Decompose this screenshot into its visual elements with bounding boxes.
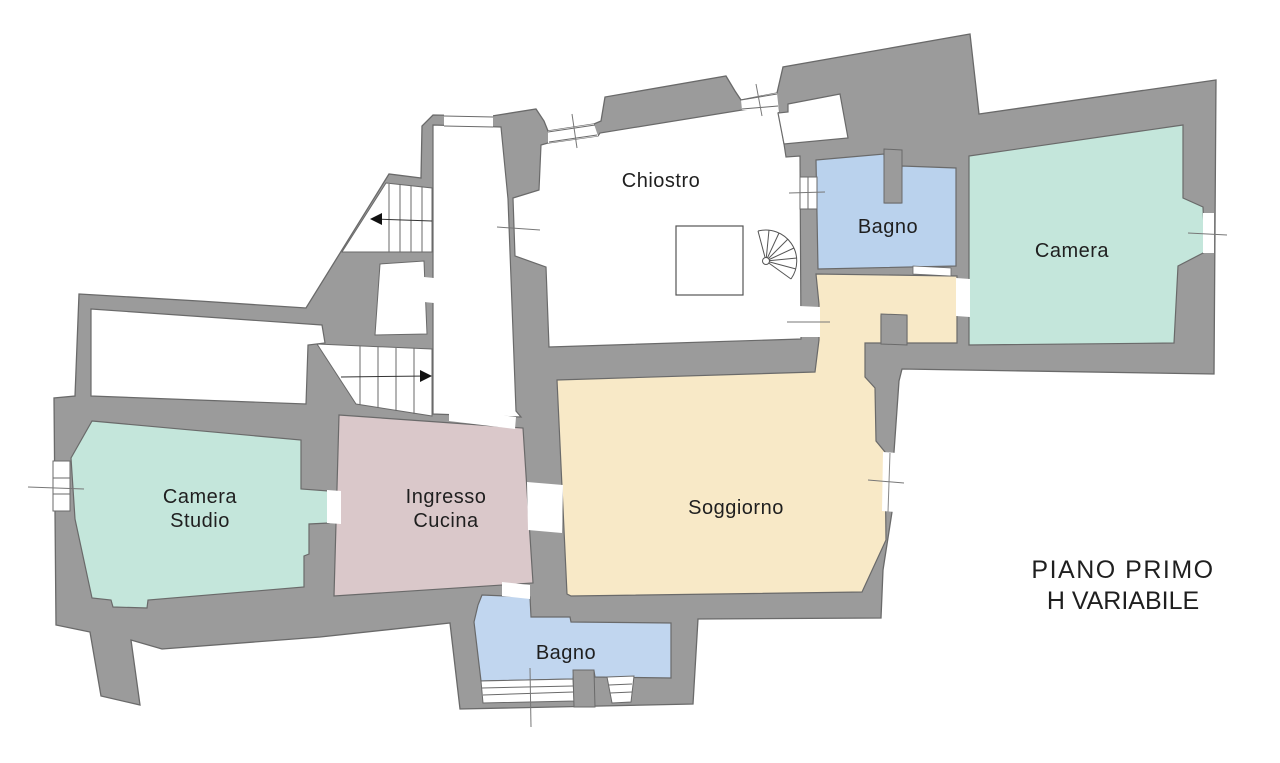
svg-text:Chiostro: Chiostro bbox=[622, 170, 700, 192]
svg-text:Soggiorno: Soggiorno bbox=[688, 497, 784, 519]
svg-text:PIANO PRIMO: PIANO PRIMO bbox=[1031, 556, 1214, 584]
svg-text:Camera: Camera bbox=[163, 486, 238, 508]
svg-text:Camera: Camera bbox=[1035, 240, 1110, 262]
svg-text:Ingresso: Ingresso bbox=[406, 486, 487, 508]
svg-text:Bagno: Bagno bbox=[858, 216, 918, 238]
svg-text:Bagno: Bagno bbox=[536, 642, 596, 664]
svg-text:Cucina: Cucina bbox=[413, 510, 479, 532]
svg-text:H VARIABILE: H VARIABILE bbox=[1047, 587, 1199, 615]
svg-text:Studio: Studio bbox=[170, 510, 230, 532]
